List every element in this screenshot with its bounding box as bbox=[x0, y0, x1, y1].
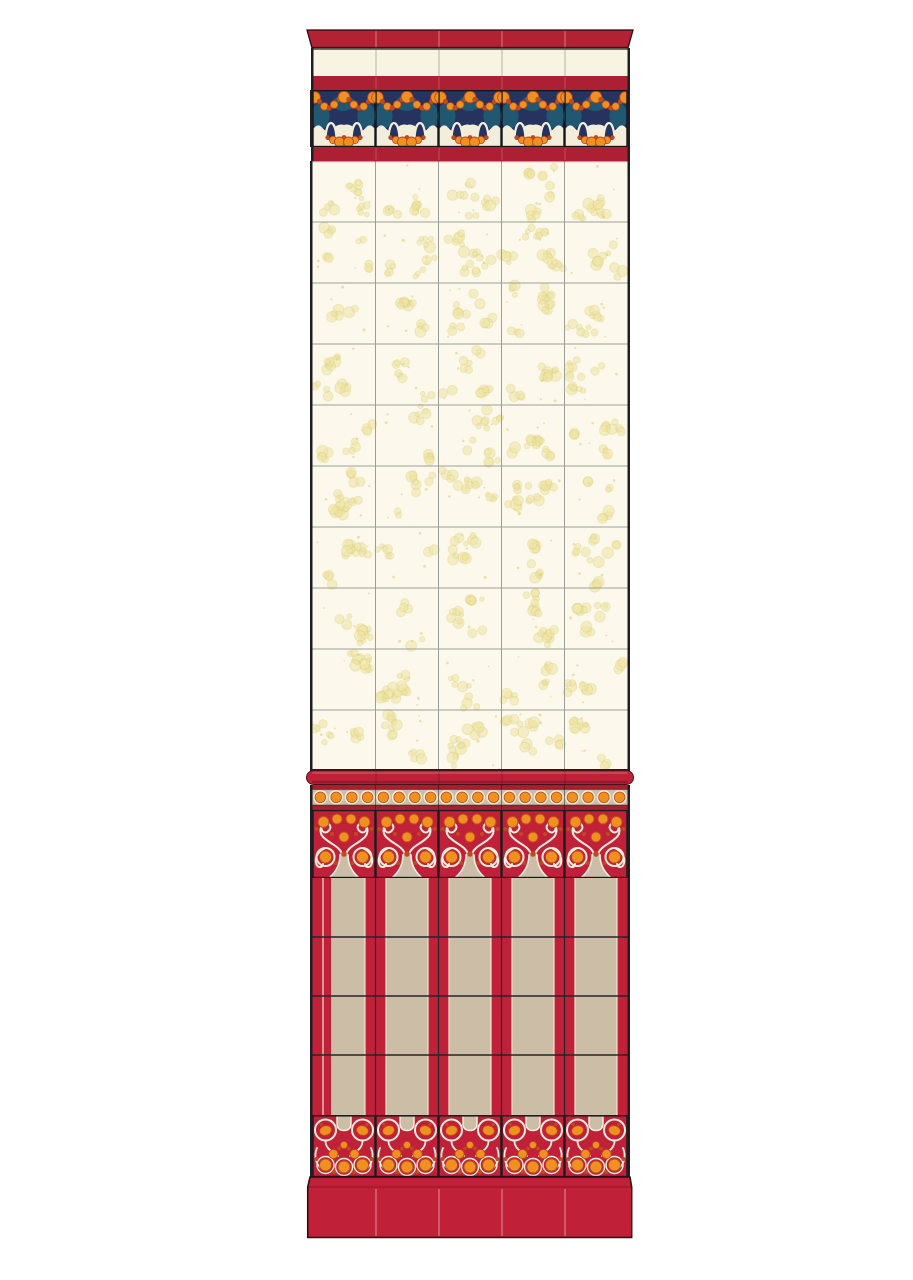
cornice-molding bbox=[305, 29, 635, 49]
plain-tile-course bbox=[311, 48, 630, 76]
tile-panel-plate bbox=[0, 0, 913, 1280]
dado-panel-tiles bbox=[310, 878, 630, 1115]
plinth-base bbox=[305, 1176, 635, 1239]
wall-field-tiles bbox=[310, 161, 630, 771]
dot-border-band bbox=[310, 785, 630, 810]
art-nouveau-frieze bbox=[310, 90, 630, 147]
red-border-top bbox=[311, 76, 630, 90]
base-frieze-band bbox=[310, 1115, 630, 1177]
chair-rail-molding bbox=[306, 770, 634, 785]
red-border-bottom bbox=[311, 147, 630, 161]
dado-frieze-band bbox=[310, 810, 630, 878]
